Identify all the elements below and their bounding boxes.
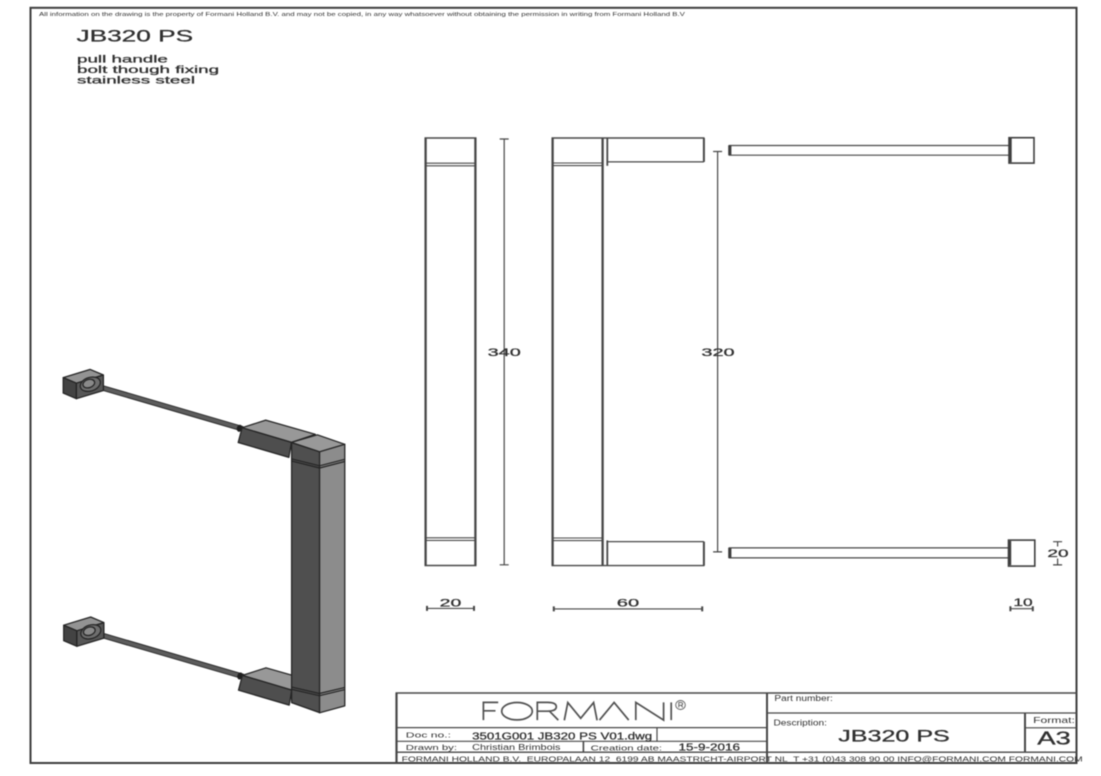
svg-text:15-9-2016: 15-9-2016 xyxy=(679,741,741,753)
svg-text:Christian Brimbois: Christian Brimbois xyxy=(472,744,561,753)
svg-text:stainless steel: stainless steel xyxy=(77,75,195,86)
svg-text:20: 20 xyxy=(1047,547,1069,559)
svg-text:JB320 PS: JB320 PS xyxy=(77,26,194,45)
svg-text:Doc no.:: Doc no.: xyxy=(406,732,451,740)
svg-text:bolt though fixing: bolt though fixing xyxy=(77,64,219,75)
svg-text:10: 10 xyxy=(1013,597,1032,609)
svg-text:All information on the drawing: All information on the drawing is the pr… xyxy=(39,12,685,18)
svg-text:3501G001 JB320 PS V01.dwg: 3501G001 JB320 PS V01.dwg xyxy=(472,730,652,742)
svg-text:JB320 PS: JB320 PS xyxy=(838,728,950,746)
svg-text:Creation date:: Creation date: xyxy=(591,744,663,753)
svg-text:Description:: Description: xyxy=(774,719,827,728)
svg-text:pull handle: pull handle xyxy=(77,54,168,65)
svg-text:Drawn by:: Drawn by: xyxy=(406,744,457,753)
svg-text:20: 20 xyxy=(440,597,462,609)
svg-text:340: 340 xyxy=(488,346,521,358)
svg-text:60: 60 xyxy=(617,597,639,609)
svg-text:FORMANI HOLLAND B.V. EUROPALA: FORMANI HOLLAND B.V. EUROPALAAN 12 6199 … xyxy=(402,755,1083,763)
svg-text:Part number:: Part number: xyxy=(774,694,832,703)
svg-text:A3: A3 xyxy=(1037,728,1071,748)
svg-text:Format:: Format: xyxy=(1033,717,1075,726)
svg-text:320: 320 xyxy=(701,346,734,358)
